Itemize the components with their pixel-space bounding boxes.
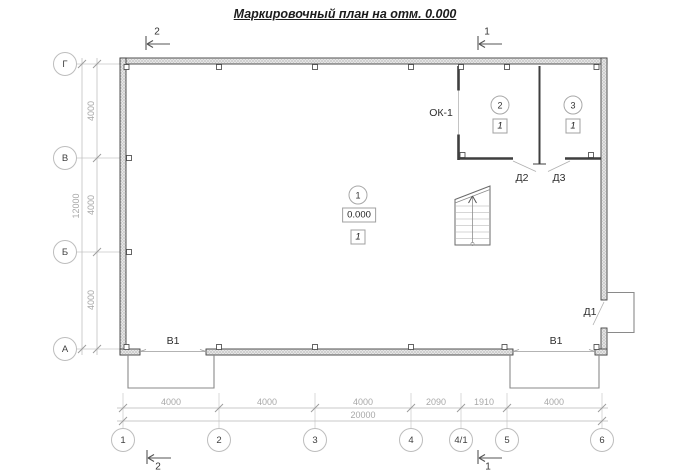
dim-bottom-5-6: 4000 [544, 397, 564, 407]
axis-bubble-4-1: 4/1 [449, 428, 473, 452]
window-label-ok1: ОК-1 [429, 107, 453, 119]
dim-left-g-v: 4000 [86, 101, 96, 121]
axis-bubble-b: Б [53, 240, 77, 264]
axis-bubble-g: Г [53, 52, 77, 76]
axis-bubble-1: 1 [111, 428, 135, 452]
dim-left-total: 12000 [71, 193, 81, 218]
axis-bubble-4: 4 [399, 428, 423, 452]
axis-bubble-2: 2 [207, 428, 231, 452]
floor-plan-sheet: Маркировочный план на отм. 0.000 Г В Б А… [0, 0, 700, 474]
door-label-d1: Д1 [584, 306, 597, 318]
section-number-bottom-right: 1 [485, 462, 491, 473]
dim-left-v-b: 4000 [86, 195, 96, 215]
gate-label-v1-left: В1 [167, 335, 180, 347]
door-leaders [513, 161, 604, 325]
door-label-d2: Д2 [516, 172, 529, 184]
axis-bubble-3: 3 [303, 428, 327, 452]
room-1-floor-type-mark: 1 [351, 230, 366, 245]
axis-lines [76, 64, 602, 428]
room-1-number-bubble: 1 [349, 186, 368, 205]
dimension-ticks [78, 60, 606, 425]
dim-bottom-4-41: 2090 [426, 397, 446, 407]
exterior-walls [120, 58, 607, 355]
gate-label-v1-right: В1 [550, 335, 563, 347]
section-cut-marks [146, 36, 502, 464]
door-label-d3: Д3 [553, 172, 566, 184]
dim-bottom-41-5: 1910 [474, 397, 494, 407]
drawing-title: Маркировочный план на отм. 0.000 [234, 7, 457, 21]
axis-bubble-5: 5 [495, 428, 519, 452]
axis-bubble-6: 6 [590, 428, 614, 452]
stairs [455, 186, 490, 246]
room-1-elevation-mark: 0.000 [342, 208, 376, 223]
dim-bottom-total: 20000 [350, 410, 375, 420]
section-number-bottom-left: 2 [155, 462, 161, 473]
dim-bottom-3-4: 4000 [353, 397, 373, 407]
axis-bubble-v: В [53, 146, 77, 170]
dimension-lines [82, 58, 608, 421]
room-3-floor-type-mark: 1 [566, 119, 581, 134]
room-2-number-bubble: 2 [491, 96, 510, 115]
partition-walls [458, 66, 601, 164]
dim-bottom-2-3: 4000 [257, 397, 277, 407]
room-3-number-bubble: 3 [564, 96, 583, 115]
dim-left-b-a: 4000 [86, 290, 96, 310]
dim-bottom-1-2: 4000 [161, 397, 181, 407]
axis-bubble-a: А [53, 337, 77, 361]
room-2-floor-type-mark: 1 [493, 119, 508, 134]
section-number-top-left: 2 [154, 27, 160, 38]
section-number-top-right: 1 [484, 27, 490, 38]
